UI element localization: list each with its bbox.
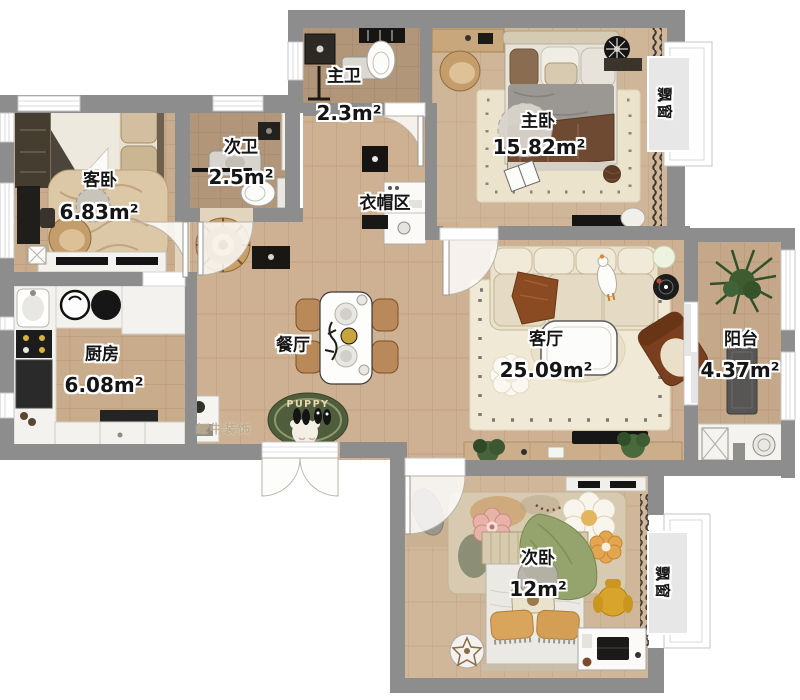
desk xyxy=(578,628,646,670)
entry-door xyxy=(262,442,338,496)
room-label-second-bedroom-name: 次卧 xyxy=(521,551,555,568)
wall-shelf xyxy=(566,477,646,491)
entry-rug: PUPPY xyxy=(268,393,348,447)
sliding-door xyxy=(684,302,698,405)
desk-chair xyxy=(40,208,55,228)
window xyxy=(18,96,80,111)
window xyxy=(213,96,263,111)
radiator-cabinet xyxy=(38,252,166,272)
room-label-second-bath-area: 2.5m² xyxy=(208,167,273,187)
watermark: 红牛装饰 xyxy=(196,420,252,437)
kitchen-doorway xyxy=(143,272,185,286)
watermark-logo-icon xyxy=(196,420,212,434)
sink xyxy=(17,289,49,327)
shoe-rack xyxy=(362,215,388,229)
dining-chair xyxy=(372,341,398,373)
desk xyxy=(17,186,40,244)
room-label-guest-bedroom-area: 6.83m² xyxy=(60,202,139,222)
room-label-master-bath-area: 2.3m² xyxy=(316,103,381,123)
room-label-cloakroom-name: 衣帽区 xyxy=(360,196,411,213)
rattan-chair xyxy=(440,51,480,91)
side-table-black xyxy=(653,274,679,300)
room-label-living-area: 25.09m² xyxy=(500,360,593,380)
stove xyxy=(16,330,52,358)
room-label-balcony-area: 4.37m² xyxy=(701,360,780,380)
bay-window-label-bottom: 飘窗 xyxy=(655,566,670,600)
shelf xyxy=(604,58,642,71)
room-label-second-bath-name: 次卫 xyxy=(224,140,258,157)
room-label-second-bedroom-area: 12m² xyxy=(509,579,566,599)
window xyxy=(0,113,14,258)
floorplan-graphic: PUPPY xyxy=(0,0,800,700)
room-label-master-bedroom-name: 主卧 xyxy=(521,114,555,131)
room-label-kitchen-area: 6.08m² xyxy=(65,375,144,395)
pot-white xyxy=(61,291,89,319)
room-label-guest-bedroom-name: 客卧 xyxy=(83,173,117,190)
range-hood xyxy=(100,410,158,423)
room-label-balcony-name: 阳台 xyxy=(724,332,758,349)
second-bedroom-doorframe xyxy=(405,458,465,476)
room-label-kitchen-name: 厨房 xyxy=(85,347,119,364)
room-label-living-name: 客厅 xyxy=(529,332,563,349)
bay-window-label-top: 飘窗 xyxy=(657,87,672,121)
dining-chair xyxy=(296,299,322,331)
room-label-master-bath-name: 主卫 xyxy=(327,69,361,86)
fridge xyxy=(122,286,185,334)
dining-chair xyxy=(372,299,398,331)
pot-black xyxy=(91,290,121,320)
floor-plan: PUPPY xyxy=(0,0,800,700)
window xyxy=(288,42,303,80)
side-table-cream xyxy=(653,246,675,268)
wardrobe xyxy=(15,100,51,188)
dining-table xyxy=(320,292,372,384)
tall-cabinet xyxy=(16,360,52,408)
stool xyxy=(28,246,46,264)
round-table xyxy=(450,634,484,668)
dryer xyxy=(753,434,775,456)
room-label-dining-name: 餐厅 xyxy=(276,338,310,355)
utility-cabinet xyxy=(698,424,782,464)
rug-text: PUPPY xyxy=(287,399,330,410)
room-label-master-bedroom-area: 15.82m² xyxy=(493,137,586,157)
pouf xyxy=(621,208,645,228)
